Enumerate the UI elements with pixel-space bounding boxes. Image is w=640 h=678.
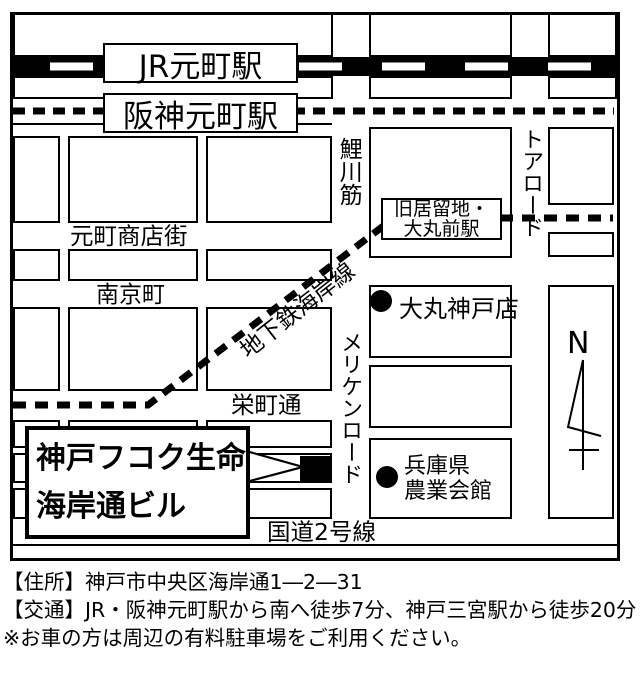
destination-name-line2: 海岸通ビル <box>36 483 246 531</box>
access-map: 元町商店街 南京町 栄町通 国道2号線 鯉川筋 トアロード メリケンロード 地下… <box>0 0 640 678</box>
callout-pointer <box>246 451 303 482</box>
destination-label-box: 神戸フコク生命 海岸通ビル <box>25 426 250 539</box>
destination-name-line1: 神戸フコク生命 <box>36 435 246 483</box>
callout-pointer-layer <box>0 0 640 678</box>
